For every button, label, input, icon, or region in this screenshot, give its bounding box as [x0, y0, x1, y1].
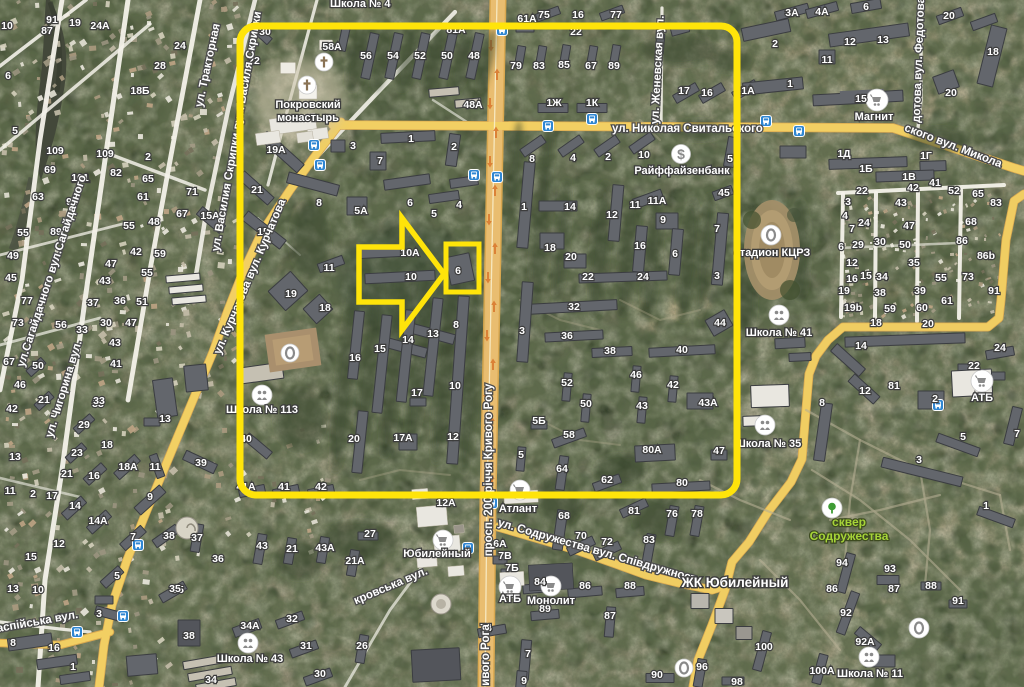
svg-text:100А: 100А	[809, 665, 835, 677]
svg-text:45: 45	[5, 272, 17, 284]
svg-text:45: 45	[718, 187, 730, 199]
svg-text:86: 86	[579, 580, 591, 592]
svg-text:42: 42	[6, 403, 18, 415]
svg-text:31: 31	[300, 640, 312, 652]
svg-text:АТБ: АТБ	[499, 593, 521, 605]
svg-text:24А: 24А	[90, 20, 110, 32]
svg-text:7: 7	[130, 531, 136, 543]
svg-text:5: 5	[518, 449, 524, 461]
svg-text:Покровский: Покровский	[275, 99, 340, 111]
svg-text:77: 77	[610, 9, 622, 21]
svg-text:21: 21	[251, 184, 263, 196]
svg-text:50: 50	[580, 398, 592, 410]
svg-text:83: 83	[990, 197, 1002, 209]
svg-text:43: 43	[636, 400, 648, 412]
svg-text:88: 88	[925, 580, 937, 592]
svg-text:30: 30	[874, 236, 886, 248]
svg-text:2: 2	[30, 488, 36, 500]
svg-text:16: 16	[572, 9, 584, 21]
svg-text:52: 52	[414, 50, 426, 62]
svg-text:8: 8	[819, 397, 825, 409]
svg-text:59: 59	[884, 303, 896, 315]
svg-text:32: 32	[286, 613, 298, 625]
svg-text:5: 5	[12, 125, 18, 137]
svg-text:16: 16	[846, 273, 858, 285]
svg-text:18А: 18А	[118, 461, 138, 473]
svg-text:56: 56	[55, 319, 67, 331]
svg-text:6: 6	[838, 241, 844, 253]
svg-text:16: 16	[701, 87, 713, 99]
svg-text:22: 22	[582, 271, 594, 283]
svg-text:11А: 11А	[648, 195, 667, 207]
svg-text:55: 55	[141, 267, 153, 279]
svg-text:6: 6	[407, 197, 413, 209]
svg-text:7: 7	[714, 223, 720, 235]
svg-text:47: 47	[125, 317, 137, 329]
svg-text:46: 46	[630, 369, 642, 381]
svg-text:60: 60	[916, 302, 928, 314]
svg-text:20: 20	[348, 433, 360, 445]
svg-text:6: 6	[455, 265, 461, 277]
svg-text:Содружества: Содружества	[810, 529, 889, 543]
svg-text:47: 47	[903, 220, 915, 232]
svg-text:43: 43	[99, 275, 111, 287]
svg-text:65: 65	[972, 188, 984, 200]
svg-text:85: 85	[558, 59, 570, 71]
svg-text:86: 86	[956, 235, 968, 247]
svg-text:30: 30	[314, 668, 326, 680]
svg-text:62: 62	[601, 474, 613, 486]
svg-text:сквер: сквер	[832, 515, 866, 529]
svg-text:15: 15	[860, 270, 872, 282]
svg-text:Райффайзенбанк: Райффайзенбанк	[634, 165, 730, 177]
svg-text:6: 6	[863, 1, 869, 13]
svg-text:52: 52	[948, 185, 960, 197]
svg-text:20: 20	[922, 318, 934, 330]
svg-text:32: 32	[568, 301, 580, 313]
svg-text:12: 12	[846, 257, 858, 269]
svg-text:13: 13	[877, 34, 889, 46]
svg-text:Монолит: Монолит	[527, 595, 576, 607]
svg-text:50: 50	[899, 239, 911, 251]
svg-text:16: 16	[48, 642, 60, 654]
svg-text:59: 59	[154, 248, 166, 260]
svg-text:18Б: 18Б	[130, 85, 150, 97]
svg-text:5Б: 5Б	[532, 415, 546, 427]
svg-text:22: 22	[968, 360, 980, 372]
svg-text:55: 55	[935, 272, 947, 284]
svg-text:29: 29	[78, 419, 90, 431]
svg-text:10: 10	[32, 584, 44, 596]
svg-text:43А: 43А	[315, 542, 335, 554]
svg-text:19: 19	[69, 17, 81, 29]
svg-text:9: 9	[660, 214, 666, 226]
svg-text:71: 71	[186, 186, 198, 198]
svg-text:39: 39	[195, 457, 207, 469]
svg-text:16: 16	[634, 240, 646, 252]
svg-text:8: 8	[10, 637, 16, 649]
svg-text:87: 87	[888, 583, 900, 595]
svg-text:48: 48	[468, 50, 480, 62]
svg-text:9: 9	[521, 675, 527, 687]
svg-text:1Ж: 1Ж	[546, 97, 562, 109]
svg-text:3: 3	[714, 270, 720, 282]
svg-text:11: 11	[149, 461, 160, 473]
svg-text:10: 10	[449, 380, 461, 392]
svg-text:38: 38	[604, 345, 616, 357]
svg-text:2: 2	[932, 393, 938, 405]
svg-text:49: 49	[7, 250, 19, 262]
svg-text:48А: 48А	[463, 99, 483, 111]
svg-text:93: 93	[884, 563, 896, 575]
svg-text:55: 55	[17, 227, 29, 239]
svg-text:28: 28	[154, 60, 166, 72]
svg-text:64: 64	[556, 463, 568, 475]
svg-text:1: 1	[408, 133, 414, 145]
svg-text:88: 88	[624, 580, 636, 592]
svg-text:12: 12	[447, 431, 459, 443]
svg-text:1Б: 1Б	[859, 163, 873, 175]
svg-text:43А: 43А	[698, 397, 718, 409]
svg-text:18: 18	[870, 317, 882, 329]
svg-text:91: 91	[988, 285, 1000, 297]
svg-text:87: 87	[41, 25, 53, 37]
svg-text:19b: 19b	[844, 302, 862, 314]
svg-text:51: 51	[136, 296, 148, 308]
svg-text:42: 42	[907, 182, 919, 194]
svg-text:47: 47	[105, 258, 117, 270]
svg-text:22: 22	[856, 185, 868, 197]
svg-text:Школа № 4: Школа № 4	[330, 0, 391, 10]
svg-text:41: 41	[110, 358, 122, 370]
svg-text:18: 18	[319, 302, 331, 314]
svg-text:73: 73	[962, 271, 974, 283]
svg-text:1: 1	[787, 78, 793, 90]
svg-text:90: 90	[651, 669, 663, 681]
svg-text:92: 92	[840, 607, 852, 619]
svg-text:37: 37	[87, 297, 99, 309]
svg-text:41: 41	[278, 481, 290, 493]
svg-text:18: 18	[544, 242, 556, 254]
svg-text:91: 91	[46, 14, 58, 26]
svg-text:41: 41	[929, 177, 941, 189]
svg-text:1: 1	[70, 661, 76, 673]
svg-text:7: 7	[525, 648, 531, 660]
svg-text:12: 12	[844, 36, 856, 48]
svg-text:21: 21	[61, 468, 73, 480]
svg-text:26: 26	[356, 640, 368, 652]
svg-text:Школа № 43: Школа № 43	[217, 653, 284, 665]
svg-text:69: 69	[44, 164, 56, 176]
svg-text:АТБ: АТБ	[971, 392, 993, 404]
svg-text:94: 94	[836, 557, 848, 569]
svg-text:79: 79	[510, 60, 522, 72]
svg-text:43: 43	[109, 337, 121, 349]
svg-text:100: 100	[755, 641, 773, 653]
svg-text:ивого Рога: ивого Рога	[480, 624, 492, 686]
svg-text:38: 38	[163, 530, 175, 542]
svg-text:7В: 7В	[498, 550, 512, 562]
svg-text:44: 44	[714, 317, 726, 329]
svg-text:11: 11	[629, 199, 640, 211]
svg-text:39: 39	[914, 285, 926, 297]
svg-text:43: 43	[256, 540, 268, 552]
svg-text:109: 109	[96, 148, 114, 160]
svg-text:19А: 19А	[266, 144, 286, 156]
svg-text:Школа № 35: Школа № 35	[735, 438, 802, 450]
svg-text:3: 3	[519, 325, 525, 337]
svg-text:Атлант: Атлант	[499, 503, 538, 515]
svg-text:11: 11	[4, 485, 15, 497]
svg-text:10: 10	[638, 149, 650, 161]
svg-text:2: 2	[772, 38, 778, 50]
svg-text:80А: 80А	[642, 444, 662, 456]
svg-text:5А: 5А	[354, 205, 368, 217]
svg-text:1А: 1А	[741, 85, 755, 97]
svg-text:3: 3	[916, 454, 922, 466]
svg-text:24: 24	[174, 40, 186, 52]
svg-text:Юбилейный: Юбилейный	[403, 548, 470, 560]
svg-text:35: 35	[169, 583, 181, 595]
svg-text:61: 61	[137, 191, 149, 203]
svg-text:3: 3	[845, 196, 851, 208]
svg-text:86: 86	[826, 583, 838, 595]
svg-text:$: $	[677, 146, 685, 162]
svg-text:89: 89	[608, 60, 620, 72]
svg-text:34: 34	[205, 674, 217, 686]
svg-text:3А: 3А	[785, 7, 799, 19]
svg-text:34А: 34А	[240, 620, 260, 632]
svg-text:12: 12	[606, 209, 618, 221]
svg-text:17: 17	[678, 85, 690, 97]
svg-text:17: 17	[46, 490, 58, 502]
svg-text:1: 1	[983, 500, 989, 512]
svg-text:58А: 58А	[322, 41, 342, 53]
svg-text:7: 7	[1014, 428, 1020, 440]
svg-text:18: 18	[987, 46, 999, 58]
svg-text:68: 68	[558, 510, 570, 522]
svg-text:81: 81	[888, 380, 900, 392]
svg-text:12А: 12А	[436, 497, 456, 509]
svg-text:68: 68	[965, 216, 977, 228]
svg-text:1Д: 1Д	[837, 148, 851, 160]
svg-text:86b: 86b	[977, 250, 995, 262]
svg-text:81: 81	[628, 505, 640, 517]
svg-text:7Б: 7Б	[505, 562, 519, 574]
svg-text:67: 67	[3, 356, 15, 368]
svg-text:4: 4	[570, 152, 576, 164]
svg-text:34: 34	[876, 271, 888, 283]
svg-text:2: 2	[145, 151, 151, 163]
svg-text:1К: 1К	[586, 97, 599, 109]
svg-text:Магнит: Магнит	[855, 111, 894, 123]
svg-text:18: 18	[101, 439, 113, 451]
svg-text:98: 98	[731, 676, 743, 687]
svg-text:80: 80	[676, 477, 688, 489]
svg-text:36: 36	[561, 330, 573, 342]
svg-text:10: 10	[405, 271, 417, 283]
svg-text:21: 21	[38, 394, 50, 406]
svg-text:40: 40	[676, 344, 688, 356]
svg-text:76: 76	[666, 508, 678, 520]
svg-text:46: 46	[14, 379, 26, 391]
svg-text:35: 35	[908, 257, 920, 269]
svg-text:11: 11	[821, 54, 832, 66]
svg-text:4: 4	[842, 210, 848, 222]
svg-text:3: 3	[350, 140, 356, 152]
svg-text:91: 91	[952, 595, 964, 607]
svg-text:17А: 17А	[393, 432, 413, 444]
svg-text:5: 5	[431, 208, 437, 220]
svg-text:42: 42	[667, 379, 679, 391]
svg-text:10: 10	[1, 20, 13, 32]
svg-text:63: 63	[32, 191, 44, 203]
svg-text:17: 17	[411, 387, 423, 399]
svg-text:5: 5	[114, 570, 120, 582]
svg-text:37: 37	[191, 532, 203, 544]
svg-text:13: 13	[159, 413, 171, 425]
svg-text:92А: 92А	[855, 636, 875, 648]
svg-text:21: 21	[286, 543, 298, 555]
svg-text:43: 43	[895, 197, 907, 209]
svg-text:48: 48	[148, 216, 160, 228]
svg-text:83: 83	[533, 60, 545, 72]
svg-text:30: 30	[100, 317, 112, 329]
svg-text:27: 27	[364, 528, 376, 540]
svg-text:47: 47	[713, 445, 725, 457]
svg-text:6: 6	[672, 248, 678, 260]
svg-text:73: 73	[12, 317, 24, 329]
svg-text:5: 5	[960, 431, 966, 443]
svg-text:3: 3	[96, 608, 102, 620]
svg-text:1: 1	[521, 201, 527, 213]
svg-text:20: 20	[565, 251, 577, 263]
svg-text:4: 4	[456, 199, 462, 211]
svg-text:29: 29	[852, 239, 864, 251]
svg-text:13: 13	[7, 583, 19, 595]
svg-text:50: 50	[32, 360, 44, 372]
svg-text:14: 14	[69, 500, 81, 512]
svg-text:24: 24	[637, 271, 649, 283]
svg-text:109: 109	[46, 145, 64, 157]
svg-text:8: 8	[316, 197, 322, 209]
svg-text:19: 19	[285, 288, 297, 300]
svg-text:38: 38	[874, 287, 886, 299]
svg-text:56: 56	[360, 50, 372, 62]
svg-text:5: 5	[727, 153, 733, 165]
svg-text:16: 16	[88, 470, 100, 482]
svg-text:20: 20	[945, 87, 957, 99]
svg-text:77: 77	[21, 295, 33, 307]
svg-text:19: 19	[838, 285, 850, 297]
svg-text:13: 13	[427, 328, 439, 340]
svg-text:84: 84	[534, 576, 546, 588]
svg-text:21А: 21А	[345, 555, 365, 567]
svg-text:9: 9	[147, 491, 153, 503]
svg-text:2: 2	[451, 141, 457, 153]
svg-text:36: 36	[212, 553, 224, 565]
svg-text:2: 2	[605, 151, 611, 163]
svg-text:58: 58	[563, 429, 575, 441]
svg-text:16: 16	[349, 352, 361, 364]
svg-text:33: 33	[76, 324, 88, 336]
svg-text:83: 83	[643, 534, 655, 546]
svg-text:52: 52	[561, 377, 573, 389]
svg-text:65: 65	[142, 173, 154, 185]
svg-text:7: 7	[849, 223, 855, 235]
svg-text:15: 15	[855, 93, 867, 105]
svg-text:20: 20	[943, 10, 955, 22]
svg-text:14: 14	[402, 334, 414, 346]
svg-text:61: 61	[941, 295, 953, 307]
svg-text:24: 24	[994, 342, 1006, 354]
svg-text:55: 55	[123, 220, 135, 232]
svg-text:4А: 4А	[815, 6, 829, 18]
svg-text:33: 33	[93, 395, 105, 407]
svg-text:67: 67	[176, 208, 188, 220]
svg-text:50: 50	[441, 50, 453, 62]
svg-text:96: 96	[696, 661, 708, 673]
svg-text:15: 15	[25, 551, 37, 563]
svg-text:11: 11	[323, 262, 334, 274]
svg-text:42: 42	[315, 481, 327, 493]
svg-text:24: 24	[858, 217, 870, 229]
svg-text:12: 12	[53, 538, 65, 550]
svg-text:87: 87	[604, 610, 616, 622]
svg-text:14: 14	[855, 340, 867, 352]
svg-text:23: 23	[71, 447, 83, 459]
svg-text:15: 15	[374, 343, 386, 355]
svg-text:монастырь: монастырь	[277, 112, 339, 124]
svg-text:1Г: 1Г	[920, 150, 932, 162]
svg-text:67: 67	[585, 60, 597, 72]
svg-text:42: 42	[130, 246, 142, 258]
svg-text:82: 82	[110, 167, 122, 179]
svg-text:75: 75	[538, 9, 550, 21]
svg-text:14: 14	[564, 201, 576, 213]
svg-text:ЖК Юбилейный: ЖК Юбилейный	[681, 575, 789, 590]
svg-text:12: 12	[859, 385, 871, 397]
svg-text:Школа № 11: Школа № 11	[837, 668, 903, 680]
svg-text:54: 54	[387, 50, 399, 62]
svg-text:13: 13	[9, 451, 21, 463]
svg-text:78: 78	[691, 508, 703, 520]
svg-text:стадион КЦРЗ: стадион КЦРЗ	[734, 247, 811, 259]
svg-text:6: 6	[5, 70, 11, 82]
svg-text:14А: 14А	[88, 515, 108, 527]
svg-text:8: 8	[529, 153, 535, 165]
svg-text:38: 38	[183, 630, 195, 642]
svg-text:36: 36	[114, 295, 126, 307]
svg-text:8: 8	[453, 319, 459, 331]
svg-text:7: 7	[377, 155, 383, 167]
svg-text:просп. 200-річчя Кривого Рогу: просп. 200-річчя Кривого Рогу	[483, 383, 495, 556]
svg-text:Школа № 41: Школа № 41	[746, 327, 813, 339]
